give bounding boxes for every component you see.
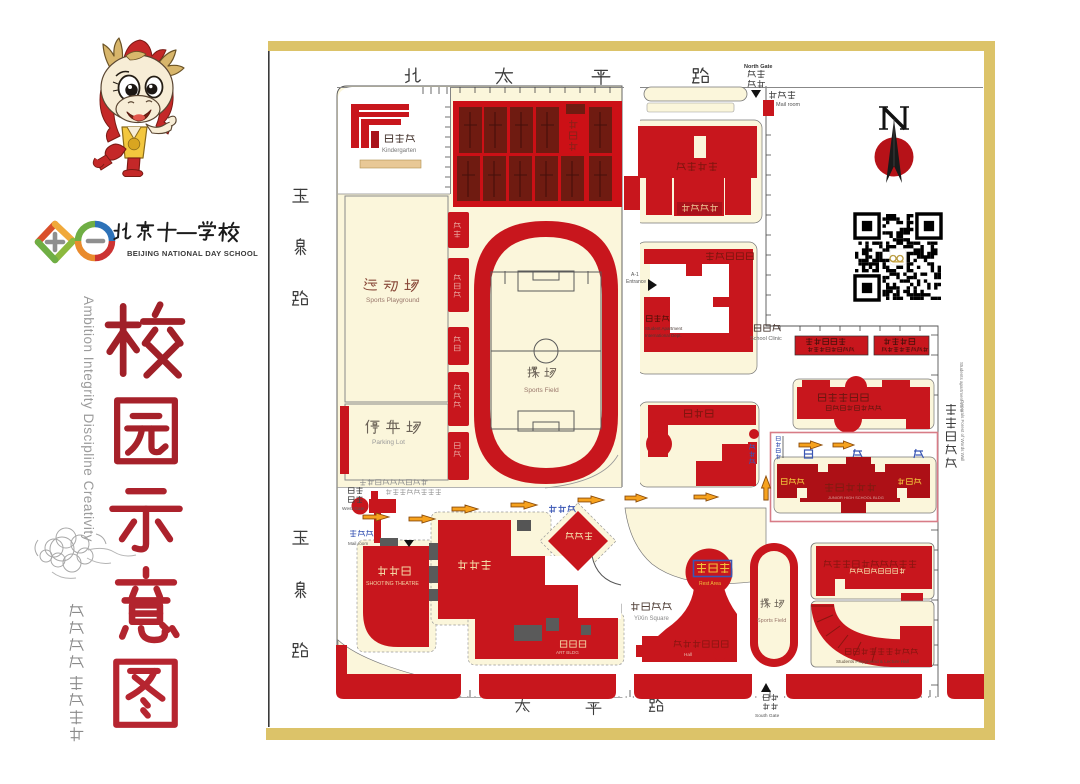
svg-text:SHOOTING THEATRE: SHOOTING THEATRE: [366, 581, 419, 587]
svg-text:JUNIOR HIGH SCHOOL BLDG: JUNIOR HIGH SCHOOL BLDG: [828, 495, 884, 500]
svg-text:School Clinic: School Clinic: [750, 336, 782, 342]
svg-text:Hall: Hall: [684, 652, 692, 657]
svg-text:Sports Playground: Sports Playground: [366, 297, 420, 304]
svg-text:West Gate: West Gate: [342, 506, 365, 512]
svg-text:Student Apartment: Student Apartment: [645, 326, 683, 331]
svg-text:BEIJING NATIONAL DAY SCHOOL: BEIJING NATIONAL DAY SCHOOL: [127, 249, 258, 258]
svg-text:Sports Field: Sports Field: [524, 387, 559, 394]
svg-text:Entrance: Entrance: [626, 279, 646, 285]
svg-text:Parking Lot: Parking Lot: [372, 439, 405, 446]
svg-text:Ambition Integrity Disciplin: Ambition Integrity Discipline Creativity: [81, 296, 96, 542]
svg-text:ART BLDG: ART BLDG: [556, 650, 579, 655]
svg-text:North Gate: North Gate: [744, 64, 772, 70]
svg-text:Kindergarten: Kindergarten: [382, 148, 416, 154]
svg-text:A-1: A-1: [631, 272, 639, 278]
svg-text:Rest Area: Rest Area: [699, 581, 721, 587]
svg-text:South Gate: South Gate: [755, 713, 780, 719]
svg-text:Students apartment zone: Students apartment zone: [959, 362, 964, 413]
svg-text:Mail room: Mail room: [348, 541, 368, 546]
svg-text:Sports Field: Sports Field: [757, 618, 786, 624]
svg-text:International Dept.: International Dept.: [645, 333, 682, 338]
svg-text:Mail room: Mail room: [776, 102, 801, 108]
svg-text:Students Playground & Lecture: Students Playground & Lecture Hall: [836, 659, 909, 664]
svg-text:YiXin Square: YiXin Square: [634, 616, 669, 622]
